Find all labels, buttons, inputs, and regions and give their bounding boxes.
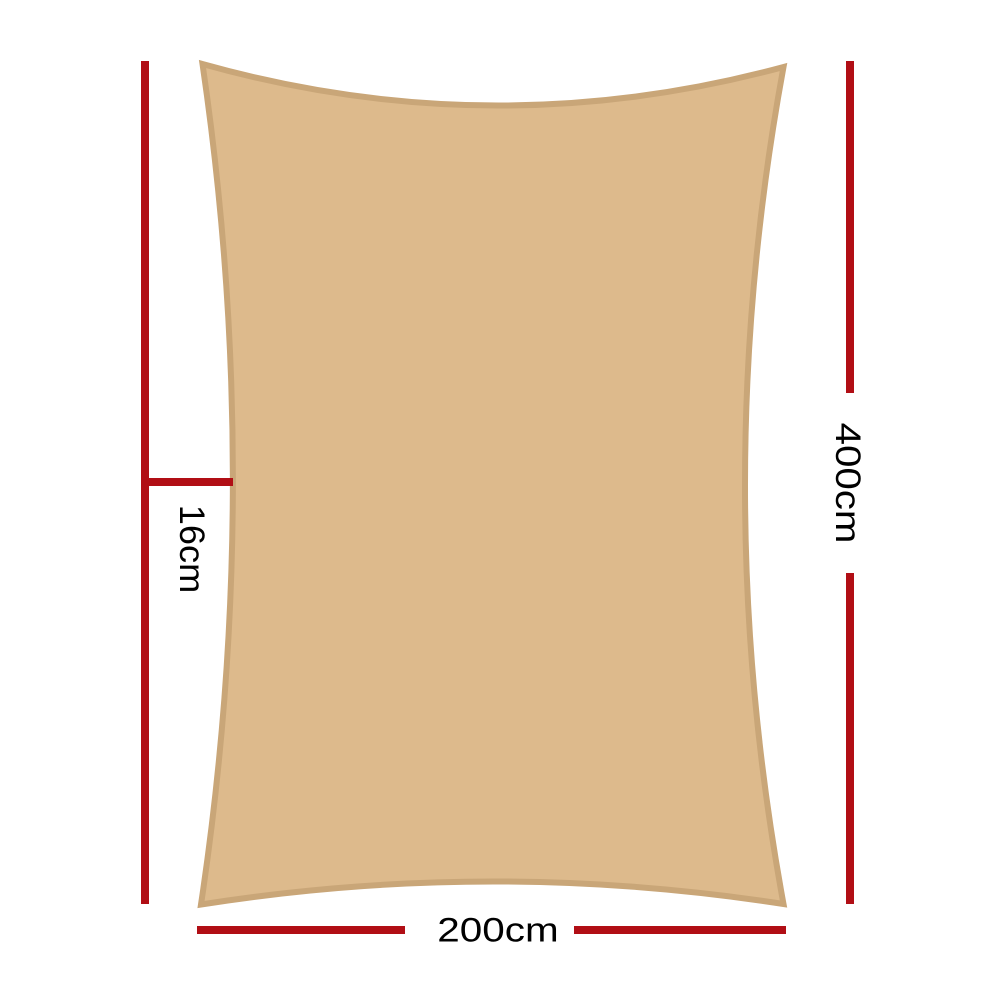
svg-text:16cm: 16cm xyxy=(172,505,211,594)
svg-text:200cm: 200cm xyxy=(437,911,558,949)
svg-text:400cm: 400cm xyxy=(829,423,868,544)
